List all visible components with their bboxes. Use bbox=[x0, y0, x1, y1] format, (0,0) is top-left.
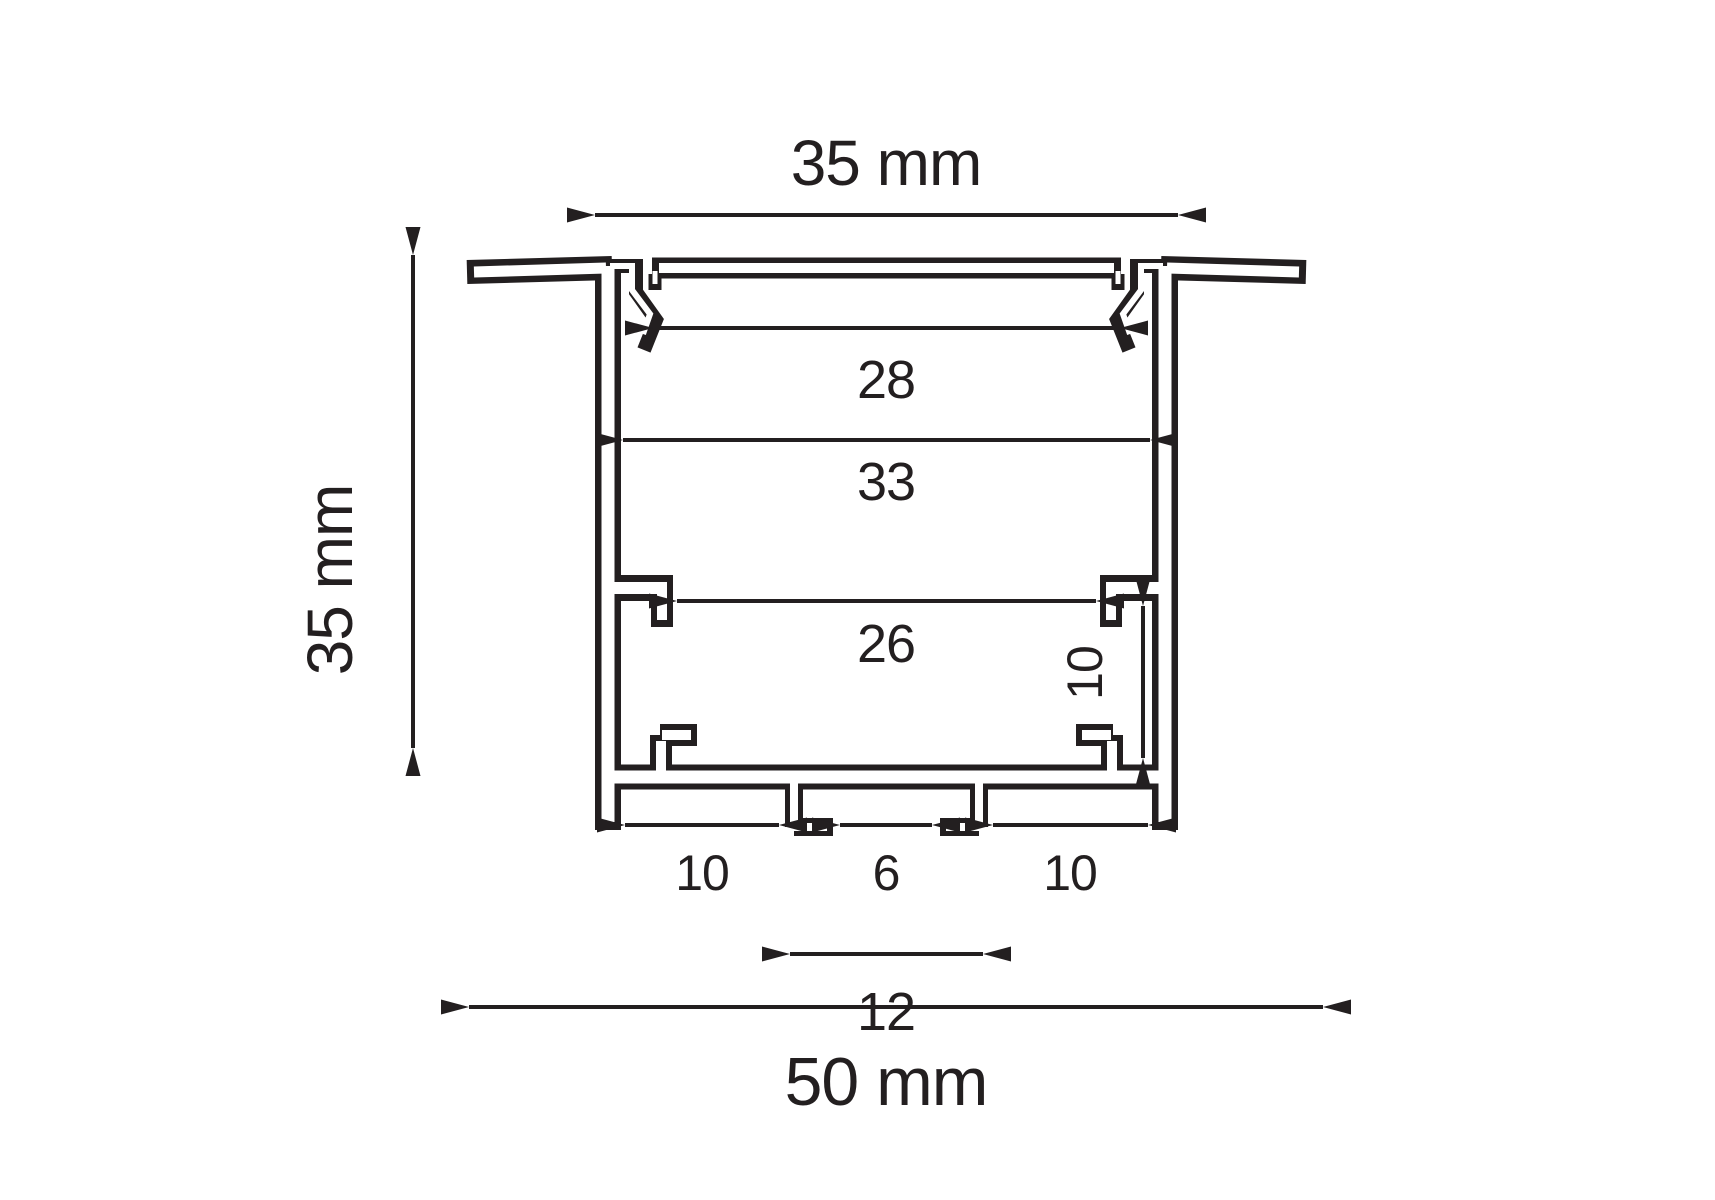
dim-body-height-label: 35 mm bbox=[294, 485, 366, 676]
profile-outline-black bbox=[467, 259, 1306, 830]
dim-side-pocket-height-label: 10 bbox=[1057, 646, 1113, 700]
dim-inner-cavity-label: 33 bbox=[857, 452, 915, 512]
dim-screw-boss-label: 12 bbox=[857, 982, 915, 1042]
led-profile-dimension-drawing: 35 mm 35 mm 28 33 26 10 10 6 10 12 50 mm bbox=[0, 0, 1715, 1200]
cross-section-canvas: 35 mm 35 mm 28 33 26 10 10 6 10 12 50 mm bbox=[0, 0, 1715, 1200]
dim-body-width-label: 35 mm bbox=[791, 127, 982, 199]
dim-overall-width-label: 50 mm bbox=[785, 1044, 988, 1120]
dim-screw-slot-gap-label: 6 bbox=[873, 845, 900, 901]
dim-bottom-pocket-right-label: 10 bbox=[1043, 845, 1097, 901]
dimension-arrows bbox=[413, 215, 1323, 1007]
dim-hook-to-hook-label: 26 bbox=[857, 614, 915, 674]
dim-bottom-pocket-left-label: 10 bbox=[675, 845, 729, 901]
dim-cover-opening-label: 28 bbox=[857, 350, 915, 410]
